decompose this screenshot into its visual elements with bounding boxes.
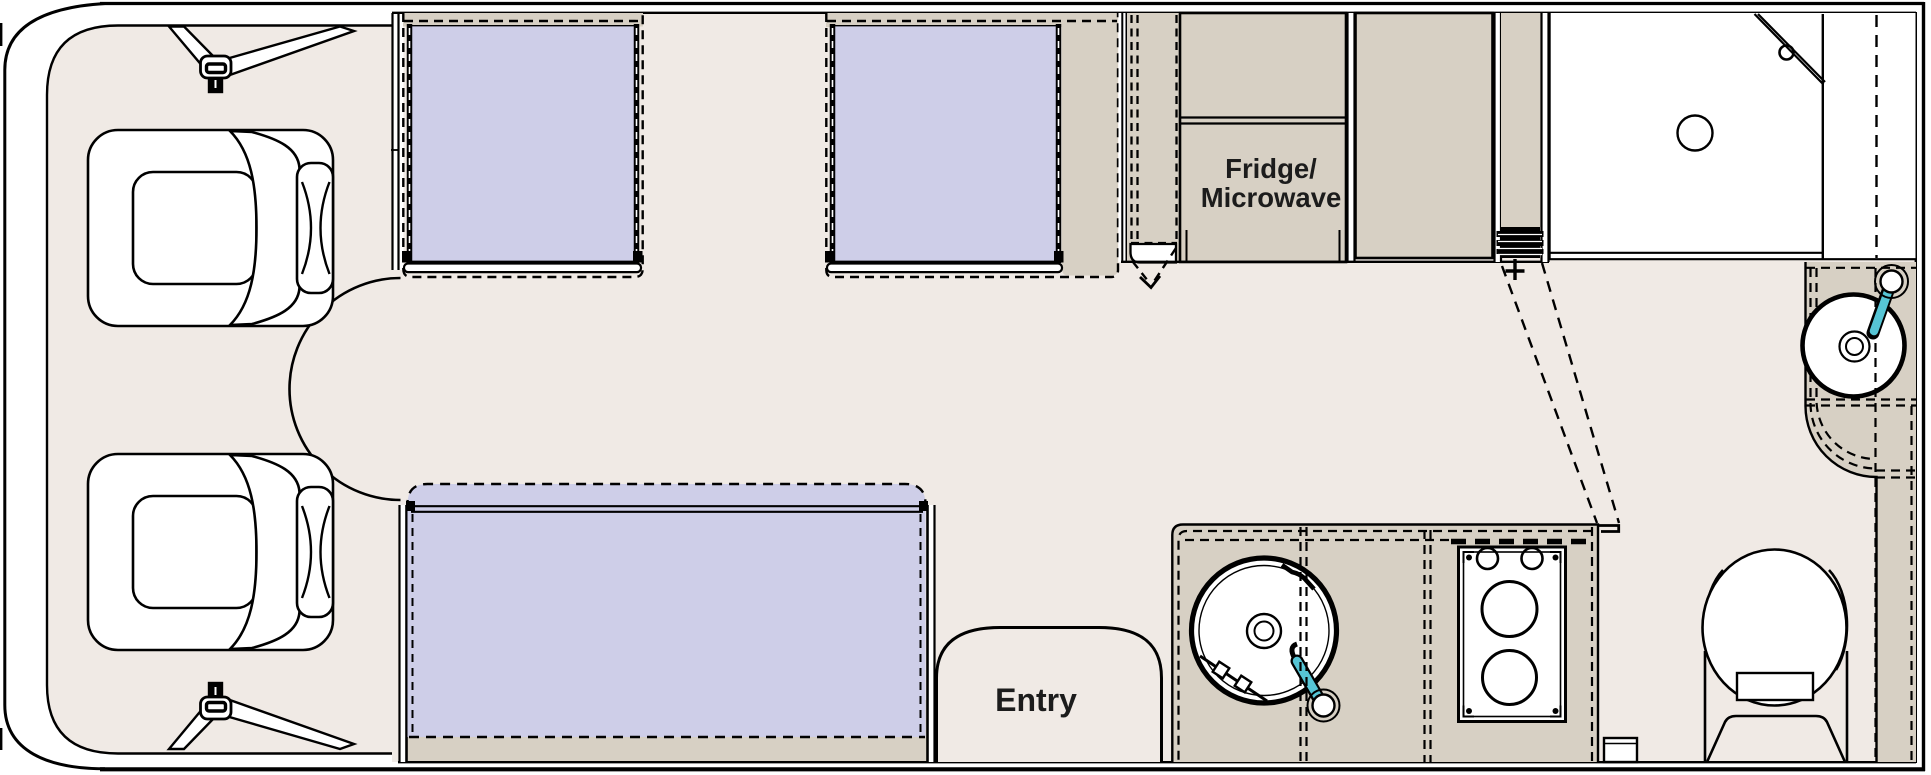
svg-text:Fridge/: Fridge/ [1225,153,1317,184]
svg-text:Entry: Entry [995,682,1077,718]
svg-text:Microwave: Microwave [1201,182,1342,213]
